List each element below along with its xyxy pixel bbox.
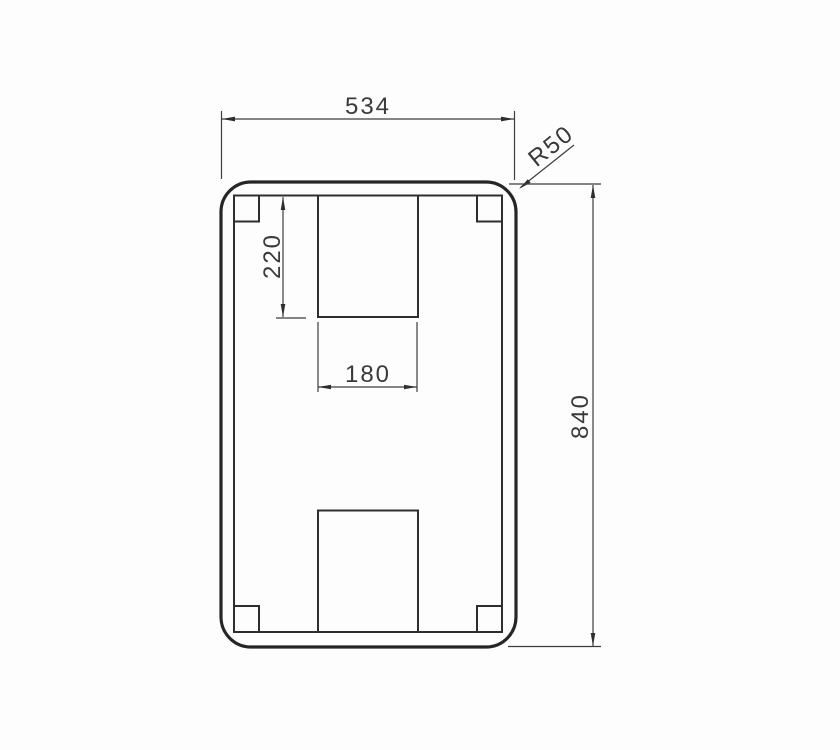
arrowhead-right-icon [404, 385, 417, 390]
dimension-label-notch-width: 180 [345, 361, 391, 388]
dimension-label-outer-height: 840 [567, 393, 594, 439]
bottom-notch-outline [318, 511, 418, 633]
arrowhead-bottom-icon [591, 633, 596, 646]
arrowhead-right-icon [501, 117, 514, 122]
dimension-label-outer-width: 534 [345, 93, 391, 120]
arrowhead-bottom-icon [281, 304, 286, 317]
dimension-label-corner-radius: R50 [523, 120, 579, 172]
arrowhead-left-icon [222, 117, 235, 122]
arrowhead-left-icon [318, 385, 331, 390]
corner-tab-bottom-left [234, 606, 259, 632]
dimension-notch-depth: 220 [259, 197, 306, 318]
corner-tab-bottom-right [477, 606, 502, 632]
dimension-label-notch-depth: 220 [259, 233, 286, 279]
dimension-notch-width: 180 [318, 322, 417, 392]
drawing-canvas: 534 R50 840 220 [0, 0, 840, 750]
arrowhead-top-icon [591, 185, 596, 198]
top-notch-outline [318, 196, 418, 318]
arrowhead-top-icon [281, 197, 286, 210]
corner-tab-top-right [477, 196, 502, 222]
corner-tab-top-left [234, 196, 259, 222]
dimension-corner-radius: R50 [519, 120, 579, 189]
dimension-outer-height: 840 [508, 184, 601, 647]
technical-drawing: 534 R50 840 220 [0, 0, 840, 750]
dimension-outer-width: 534 [222, 93, 515, 180]
